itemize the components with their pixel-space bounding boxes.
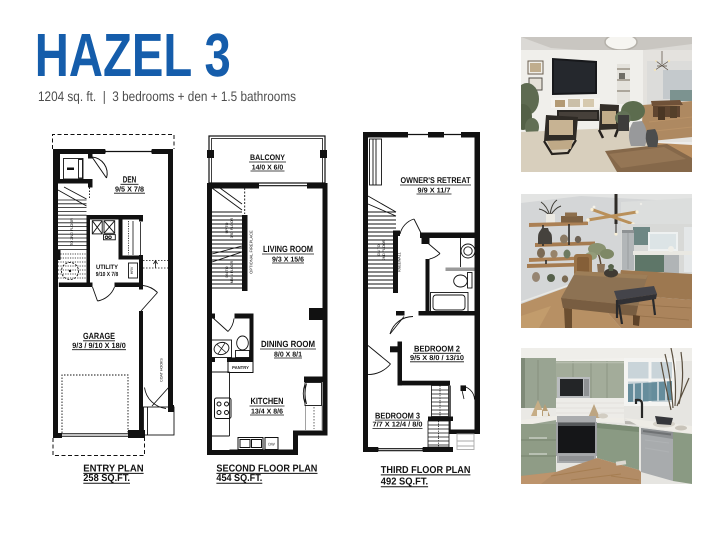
svg-text:TO 2ND FLOOR: TO 2ND FLOOR [70,218,74,246]
svg-text:2ND FLOOR: 2ND FLOOR [382,239,386,260]
svg-text:DW: DW [268,443,275,447]
svg-text:258 SQ.FT.: 258 SQ.FT. [83,473,130,484]
svg-text:DN TO: DN TO [377,244,381,255]
svg-text:9/3 X 15/6: 9/3 X 15/6 [272,256,304,264]
svg-text:THIRD FLOOR PLAN: THIRD FLOOR PLAN [381,465,471,476]
svg-text:3RD FLOOR: 3RD FLOOR [230,217,234,238]
svg-text:8/0 X 8/1: 8/0 X 8/1 [274,351,302,359]
svg-text:KNEEWALL: KNEEWALL [398,252,402,271]
svg-text:13/4 X 8/6: 13/4 X 8/6 [251,408,283,416]
svg-text:LIVING ROOM: LIVING ROOM [263,244,313,254]
svg-text:MAIN FLOOR: MAIN FLOOR [230,260,234,283]
svg-text:BEDROOM 2: BEDROOM 2 [414,344,460,354]
svg-text:PANTRY: PANTRY [232,365,249,370]
svg-text:9/3 / 9/10 X 18/0: 9/3 / 9/10 X 18/0 [72,341,126,350]
svg-text:1204 sq. ft. | 3 bedrooms +: 1204 sq. ft. | 3 bedrooms + den + 1.5 ba… [38,89,296,104]
svg-text:UTILITY: UTILITY [96,264,119,271]
svg-text:COAT HOOKS: COAT HOOKS [160,358,164,382]
svg-text:HAZEL 3: HAZEL 3 [35,21,231,89]
svg-text:HRV: HRV [130,266,134,274]
svg-text:DINING ROOM: DINING ROOM [261,339,315,349]
svg-text:DEN: DEN [123,175,137,185]
svg-text:14/0 X 6/0: 14/0 X 6/0 [252,164,284,172]
svg-text:9/9 X 11/7: 9/9 X 11/7 [418,187,451,195]
svg-text:9/5 X 8/0 / 13/10: 9/5 X 8/0 / 13/10 [410,354,464,362]
svg-text:KITCHEN: KITCHEN [251,396,284,406]
svg-text:GARAGE: GARAGE [83,331,115,341]
svg-text:OPTIONAL FIREPLACE: OPTIONAL FIREPLACE [249,230,254,274]
svg-text:454 SQ.FT.: 454 SQ.FT. [216,473,262,484]
svg-text:OWNER'S RETREAT: OWNER'S RETREAT [401,175,472,185]
svg-text:DN TO: DN TO [225,266,229,277]
svg-text:9/5 X 7/8: 9/5 X 7/8 [115,185,144,194]
svg-text:7/7 X 12/4 / 8/0: 7/7 X 12/4 / 8/0 [373,421,423,429]
svg-text:9/10 X 7/8: 9/10 X 7/8 [96,271,119,278]
svg-text:BEDROOM 3: BEDROOM 3 [375,410,420,420]
svg-text:492 SQ.FT.: 492 SQ.FT. [381,477,429,488]
svg-text:BALCONY: BALCONY [250,153,286,162]
svg-text:UP TO: UP TO [225,222,229,233]
